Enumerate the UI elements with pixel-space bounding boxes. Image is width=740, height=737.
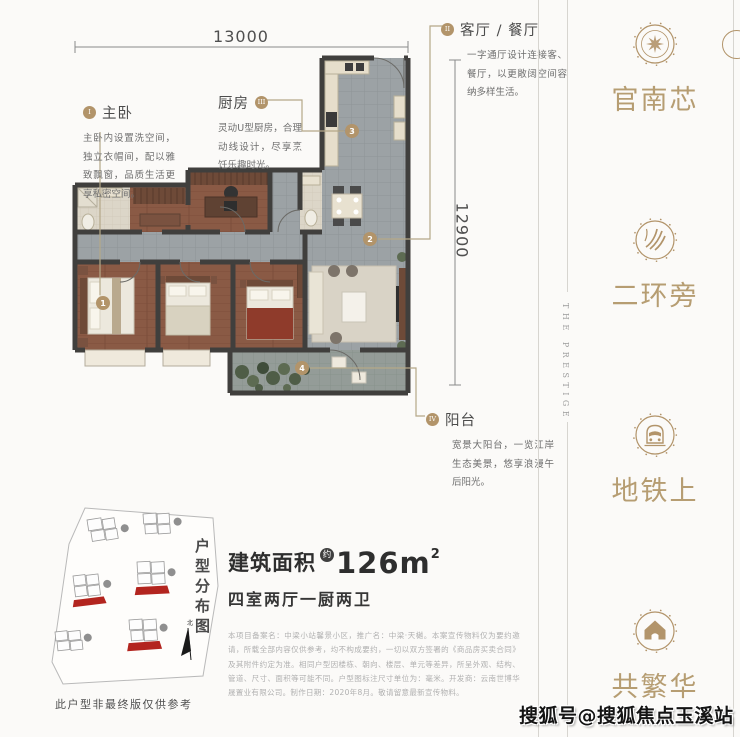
- sidebar-item-erhuanpang: 二环旁: [577, 217, 733, 313]
- layout-description: 四室两厅一厨两卫: [228, 586, 528, 610]
- road-icon: [632, 217, 678, 263]
- annotation-master-bedroom: I 主卧 主卧内设置洗空间，独立衣帽间，配以雅致飘窗，品质生活更享私密空间。: [83, 102, 193, 204]
- annotation-kitchen: 厨房 III 灵动U型厨房，合理动线设计，尽享烹饪乐趣时光。: [218, 92, 318, 176]
- area-value: 126m: [336, 548, 431, 578]
- annotation-title: 阳台: [445, 409, 476, 430]
- sidebar-item-label: 二环旁: [612, 274, 699, 313]
- sidebar-item-label: 地铁上: [612, 469, 699, 508]
- watermark-text: 搜狐号@搜狐焦点玉溪站: [519, 701, 740, 728]
- area-label: 建筑面积: [228, 548, 316, 578]
- dimension-height-label: 12900: [453, 196, 472, 266]
- disclaimer-text: 本项目备案名：中梁小站馨景小区，推广名：中梁·天樾。本案宣传物料仅为要约邀请，所…: [228, 629, 520, 700]
- area-superscript: 2: [431, 548, 440, 562]
- numeral-badge: III: [255, 96, 268, 109]
- sidebar-item-ditieshang: 地铁上: [577, 412, 733, 508]
- prestige-vertical-text: THE PRESTIGE: [561, 303, 570, 421]
- rail-rule-bottom: [567, 422, 568, 737]
- dimension-width-label: 13000: [181, 27, 301, 46]
- divider-line-inner: [538, 0, 539, 737]
- divider-line-outer: [733, 0, 734, 737]
- siteplan-title: 户型分布图: [192, 538, 213, 638]
- sidebar-item-guannanxin: 官南芯: [577, 21, 733, 117]
- marker-master: 1: [100, 299, 106, 308]
- numeral-badge: II: [441, 23, 454, 36]
- marker-living: 2: [367, 235, 373, 244]
- numeral-badge: IV: [426, 413, 439, 426]
- annotation-body: 主卧内设置洗空间，独立衣帽间，配以雅致飘窗，品质生活更享私密空间。: [83, 130, 175, 204]
- annotation-body: 一字通厅设计连接客、餐厅，以更敞阔空间容纳多样生活。: [467, 47, 567, 103]
- train-icon: [632, 412, 678, 458]
- siteplan-caption: 此户型非最终版仅供参考: [55, 696, 193, 712]
- numeral-badge: I: [83, 106, 96, 119]
- area-info: 建筑面积 约 126m 2 四室两厅一厨两卫: [228, 548, 528, 610]
- annotation-title: 主卧: [102, 102, 133, 123]
- floorplan-poster: 1 2 3 4 13000 12900 I 主卧 主卧内设置洗空间，独立衣帽间，…: [0, 0, 740, 737]
- rail-rule-top: [567, 0, 568, 292]
- annotation-body: 灵动U型厨房，合理动线设计，尽享烹饪乐趣时光。: [218, 120, 302, 176]
- compass-icon: [632, 21, 678, 67]
- house-icon: [632, 608, 678, 654]
- annotation-living-dining: II 客厅 / 餐厅 一字通厅设计连接客、餐厅，以更敞阔空间容纳多样生活。: [441, 19, 573, 103]
- marker-kitchen: 3: [349, 127, 355, 136]
- sidebar-item-label: 官南芯: [612, 78, 699, 117]
- sidebar-item-gongfanhua: 共繁华: [577, 608, 733, 704]
- annotation-title: 厨房: [218, 92, 249, 113]
- annotation-title: 客厅 / 餐厅: [460, 19, 539, 40]
- marker-balcony: 4: [299, 364, 305, 373]
- approx-badge: 约: [320, 548, 334, 562]
- sidebar-item-label: 共繁华: [612, 665, 699, 704]
